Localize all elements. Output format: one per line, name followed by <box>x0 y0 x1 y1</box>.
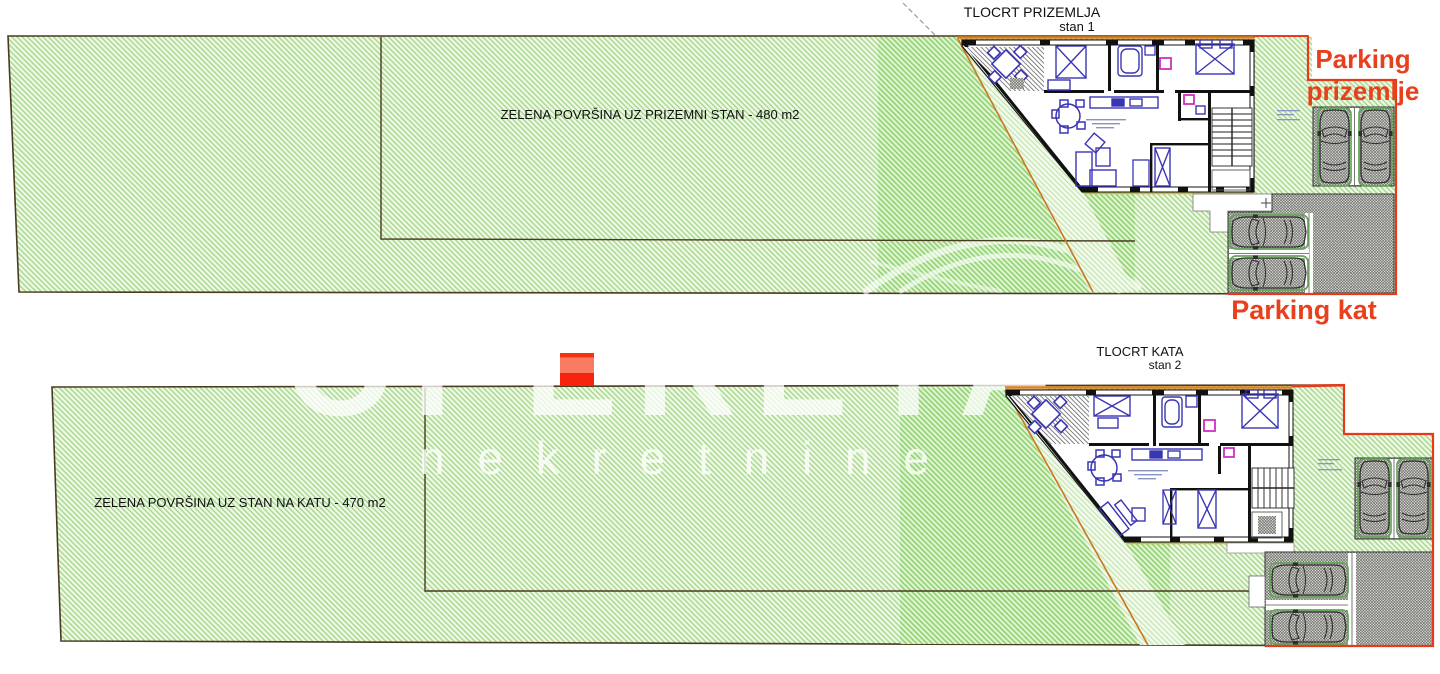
svg-text:Parking kat: Parking kat <box>1231 295 1377 325</box>
svg-text:stan 1: stan 1 <box>1059 19 1094 34</box>
svg-text:TLOCRT KATA: TLOCRT KATA <box>1096 344 1183 359</box>
svg-text:ZELENA POVRŠINA UZ STAN NA KAT: ZELENA POVRŠINA UZ STAN NA KATU - 470 m2 <box>94 495 385 510</box>
svg-text:TLOCRT PRIZEMLJA: TLOCRT PRIZEMLJA <box>964 4 1101 20</box>
svg-text:prizemlje: prizemlje <box>1307 76 1420 106</box>
svg-text:Parking: Parking <box>1315 44 1410 74</box>
svg-text:stan 2: stan 2 <box>1149 358 1182 372</box>
svg-text:ZELENA POVRŠINA UZ PRIZEMNI ST: ZELENA POVRŠINA UZ PRIZEMNI STAN - 480 m… <box>501 107 800 122</box>
svg-text:nekretnine: nekretnine <box>419 432 957 484</box>
